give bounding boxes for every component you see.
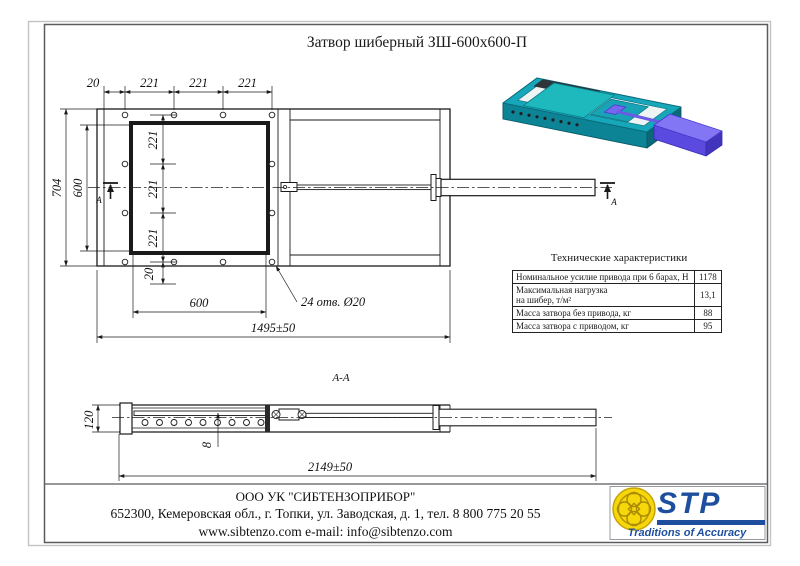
spec-label: Максимальная нагрузка на шибер, т/м² xyxy=(513,284,695,307)
end-cap xyxy=(120,403,132,434)
gate-plate-section xyxy=(134,411,266,416)
stp-logo-text: STP xyxy=(657,487,721,521)
spec-label: Номинальное усилие привода при 6 барах, … xyxy=(513,271,695,284)
section-label: A-A xyxy=(331,372,349,384)
spec-value: 95 xyxy=(694,320,721,333)
dim-221-b: 221 xyxy=(189,76,208,90)
section-mark-left: A xyxy=(95,195,102,205)
dim-120: 120 xyxy=(82,410,96,430)
seat-wall xyxy=(265,405,270,432)
3d-render xyxy=(503,78,722,156)
dim-2149: 2149±50 xyxy=(308,460,353,474)
section-view xyxy=(112,403,612,434)
dim-600-left: 600 xyxy=(71,178,85,198)
table-row: Номинальное усилие привода при 6 барах, … xyxy=(513,271,722,284)
spec-table-block: Технические характеристики Номинальное у… xyxy=(512,252,726,333)
section-mark-right: A xyxy=(610,197,617,207)
dim-221-c: 221 xyxy=(238,76,257,90)
holes-leader xyxy=(276,266,297,302)
stp-logo-bar xyxy=(657,520,765,525)
chain-20: 20 xyxy=(142,267,156,280)
dim-221-a: 221 xyxy=(140,76,159,90)
spec-table: Номинальное усилие привода при 6 барах, … xyxy=(512,270,722,333)
plan-view xyxy=(88,109,612,266)
company-address: 652300, Кемеровская обл., г. Топки, ул. … xyxy=(45,505,606,523)
spec-label: Масса затвора без привода, кг xyxy=(513,307,695,320)
rod-section xyxy=(306,413,433,417)
table-row: Масса затвора с приводом, кг 95 xyxy=(513,320,722,333)
table-row: Максимальная нагрузка на шибер, т/м² 13,… xyxy=(513,284,722,307)
stp-emblem-icon xyxy=(611,486,657,532)
spec-value: 88 xyxy=(694,307,721,320)
dim-704: 704 xyxy=(50,179,64,198)
spec-value: 1178 xyxy=(694,271,721,284)
spec-label-line2: на шибер, т/м² xyxy=(516,295,691,305)
dim-8: 8 xyxy=(200,441,214,448)
spec-label-line1: Максимальная нагрузка xyxy=(516,285,691,295)
drawing-sheet: A A 20 221 221 221 7 xyxy=(0,0,800,566)
company-contacts: www.sibtenzo.com e-mail: info@sibtenzo.c… xyxy=(45,523,606,540)
dim-600-bottom: 600 xyxy=(190,296,210,310)
clevis xyxy=(279,409,299,420)
chain-221-b: 221 xyxy=(146,180,160,199)
company-name: ООО УК "СИБТЕНЗОПРИБОР" xyxy=(45,488,606,505)
spec-table-title: Технические характеристики xyxy=(512,252,726,264)
holes-note: 24 отв. Ø20 xyxy=(301,295,366,309)
chain-221-c: 221 xyxy=(146,229,160,248)
dim-20-top: 20 xyxy=(87,76,100,90)
drawing-title: Затвор шиберный ЗШ-600х600-П xyxy=(34,34,800,52)
table-row: Масса затвора без привода, кг 88 xyxy=(513,307,722,320)
dim-1495: 1495±50 xyxy=(251,321,296,335)
title-block: ООО УК "СИБТЕНЗОПРИБОР" 652300, Кемеровс… xyxy=(45,485,606,542)
chain-221-a: 221 xyxy=(146,131,160,150)
spec-value: 13,1 xyxy=(694,284,721,307)
roller-row xyxy=(142,420,264,426)
stp-logo-tagline: Traditions of Accuracy xyxy=(607,527,767,539)
spec-label: Масса затвора с приводом, кг xyxy=(513,320,695,333)
section-arrow-right xyxy=(604,184,611,192)
